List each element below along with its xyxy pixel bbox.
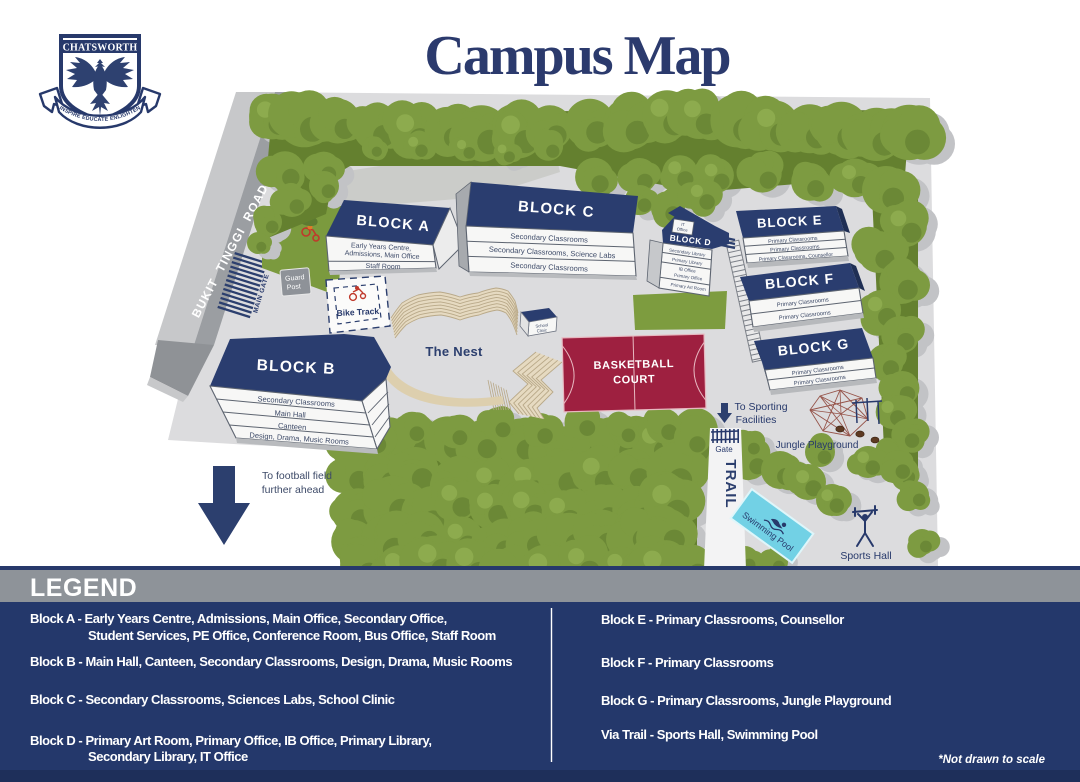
svg-text:TRAIL: TRAIL xyxy=(722,459,739,508)
svg-text:Via Trail - Sports Hall, Swimm: Via Trail - Sports Hall, Swimming Pool xyxy=(601,727,818,742)
svg-text:further ahead: further ahead xyxy=(262,484,325,496)
svg-text:To football field: To football field xyxy=(262,470,332,482)
svg-text:Block C - Secondary Classrooms: Block C - Secondary Classrooms, Sciences… xyxy=(30,692,395,707)
svg-text:Sports Hall: Sports Hall xyxy=(840,550,891,562)
svg-text:LEGEND: LEGEND xyxy=(30,574,137,602)
svg-text:Block G - Primary Classrooms,: Block G - Primary Classrooms, Jungle Pla… xyxy=(601,693,892,708)
svg-text:To Sporting: To Sporting xyxy=(734,401,787,413)
svg-text:Block E - Primary Classrooms,: Block E - Primary Classrooms, Counsellor xyxy=(601,612,844,627)
svg-text:CHATSWORTH: CHATSWORTH xyxy=(63,43,138,54)
svg-text:Gate: Gate xyxy=(715,445,733,454)
svg-text:Block F - Primary Classrooms: Block F - Primary Classrooms xyxy=(601,655,774,670)
svg-text:The Nest: The Nest xyxy=(425,344,483,359)
svg-text:Block B - Main Hall, Canteen,: Block B - Main Hall, Canteen, Secondary … xyxy=(30,654,512,669)
svg-text:*Not drawn to scale: *Not drawn to scale xyxy=(938,754,1045,766)
svg-text:Post: Post xyxy=(287,283,302,291)
svg-text:Jungle Playground: Jungle Playground xyxy=(776,440,859,451)
svg-text:COURT: COURT xyxy=(613,373,655,386)
svg-text:Clinic: Clinic xyxy=(536,327,547,333)
svg-text:Block A - Early Years Centre,: Block A - Early Years Centre, Admissions… xyxy=(30,611,447,626)
svg-text:Campus Map: Campus Map xyxy=(424,25,729,87)
svg-text:BASKETBALL: BASKETBALL xyxy=(593,358,674,372)
svg-text:Facilities: Facilities xyxy=(736,414,777,426)
svg-text:Block D - Primary Art Room, Pr: Block D - Primary Art Room, Primary Offi… xyxy=(30,733,432,748)
svg-text:Student Services, PE Office, C: Student Services, PE Office, Conference … xyxy=(88,628,496,643)
svg-text:Secondary Library, IT Office: Secondary Library, IT Office xyxy=(88,749,248,764)
